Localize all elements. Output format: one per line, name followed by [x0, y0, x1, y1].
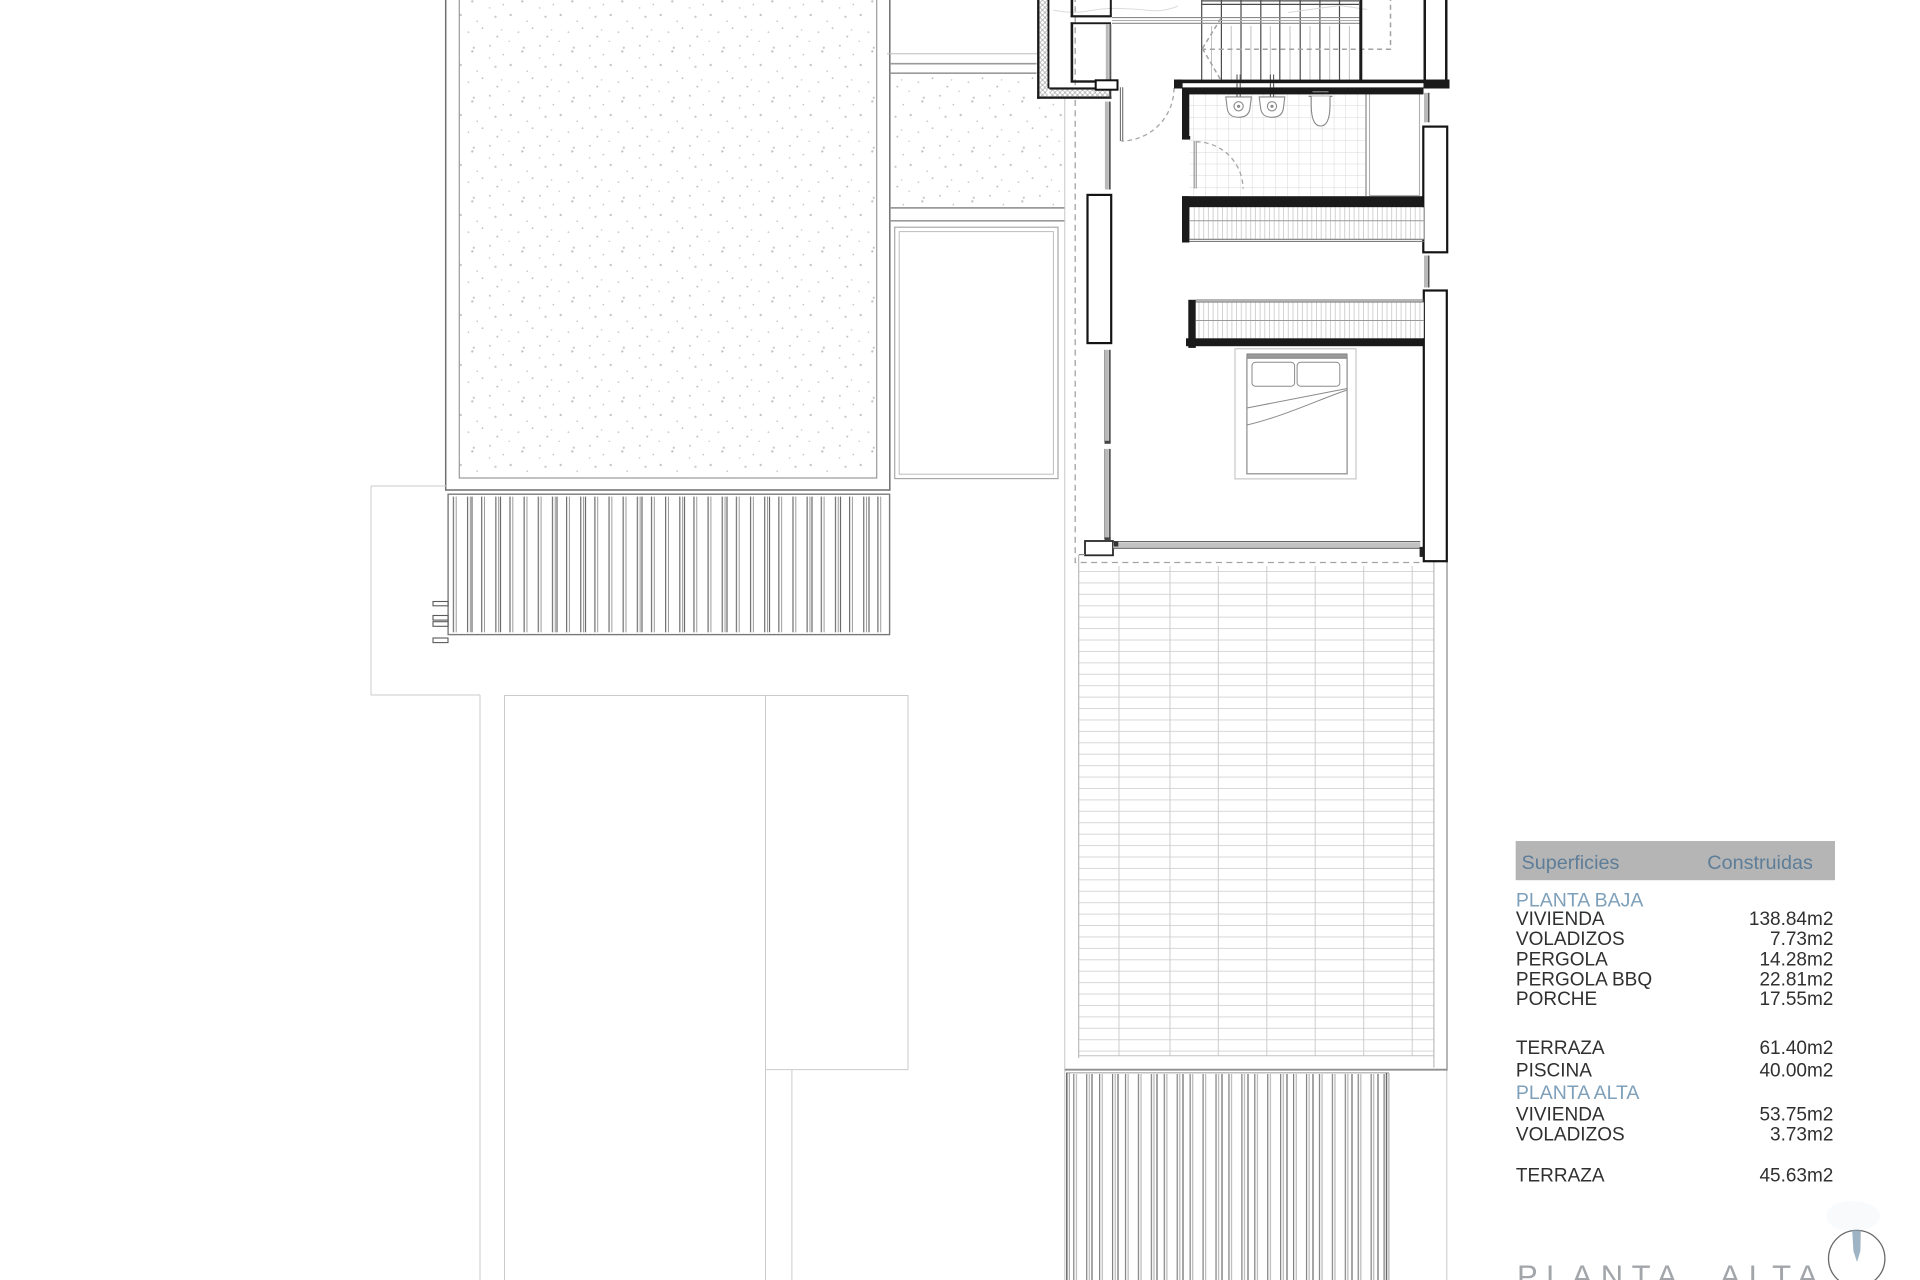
- svg-text:PERGOLA BBQ: PERGOLA BBQ: [1516, 970, 1652, 991]
- svg-text:PERGOLA: PERGOLA: [1516, 950, 1608, 971]
- svg-text:VOLADIZOS: VOLADIZOS: [1516, 929, 1625, 950]
- svg-text:45.63m2: 45.63m2: [1759, 1166, 1833, 1187]
- svg-text:61.40m2: 61.40m2: [1759, 1038, 1833, 1059]
- svg-text:VIVIENDA: VIVIENDA: [1516, 909, 1605, 930]
- svg-text:VOLADIZOS: VOLADIZOS: [1516, 1124, 1625, 1145]
- svg-text:53.75m2: 53.75m2: [1759, 1104, 1833, 1125]
- svg-text:40.00m2: 40.00m2: [1759, 1061, 1833, 1082]
- svg-text:TERRAZA: TERRAZA: [1516, 1166, 1605, 1187]
- svg-text:VIVIENDA: VIVIENDA: [1516, 1104, 1605, 1125]
- svg-text:14.28m2: 14.28m2: [1759, 950, 1833, 971]
- svg-text:PLANTA ALTA: PLANTA ALTA: [1517, 1259, 1826, 1280]
- svg-text:17.55m2: 17.55m2: [1759, 989, 1833, 1010]
- svg-text:PLANTA ALTA: PLANTA ALTA: [1516, 1082, 1640, 1104]
- svg-text:138.84m2: 138.84m2: [1749, 909, 1834, 930]
- svg-text:Construidas: Construidas: [1707, 852, 1813, 874]
- svg-text:PORCHE: PORCHE: [1516, 989, 1597, 1010]
- svg-text:7.73m2: 7.73m2: [1770, 929, 1833, 950]
- svg-text:TERRAZA: TERRAZA: [1516, 1038, 1605, 1059]
- svg-text:22.81m2: 22.81m2: [1759, 970, 1833, 991]
- svg-text:PISCINA: PISCINA: [1516, 1061, 1592, 1082]
- svg-text:3.73m2: 3.73m2: [1770, 1124, 1833, 1145]
- svg-text:Superficies: Superficies: [1522, 852, 1620, 874]
